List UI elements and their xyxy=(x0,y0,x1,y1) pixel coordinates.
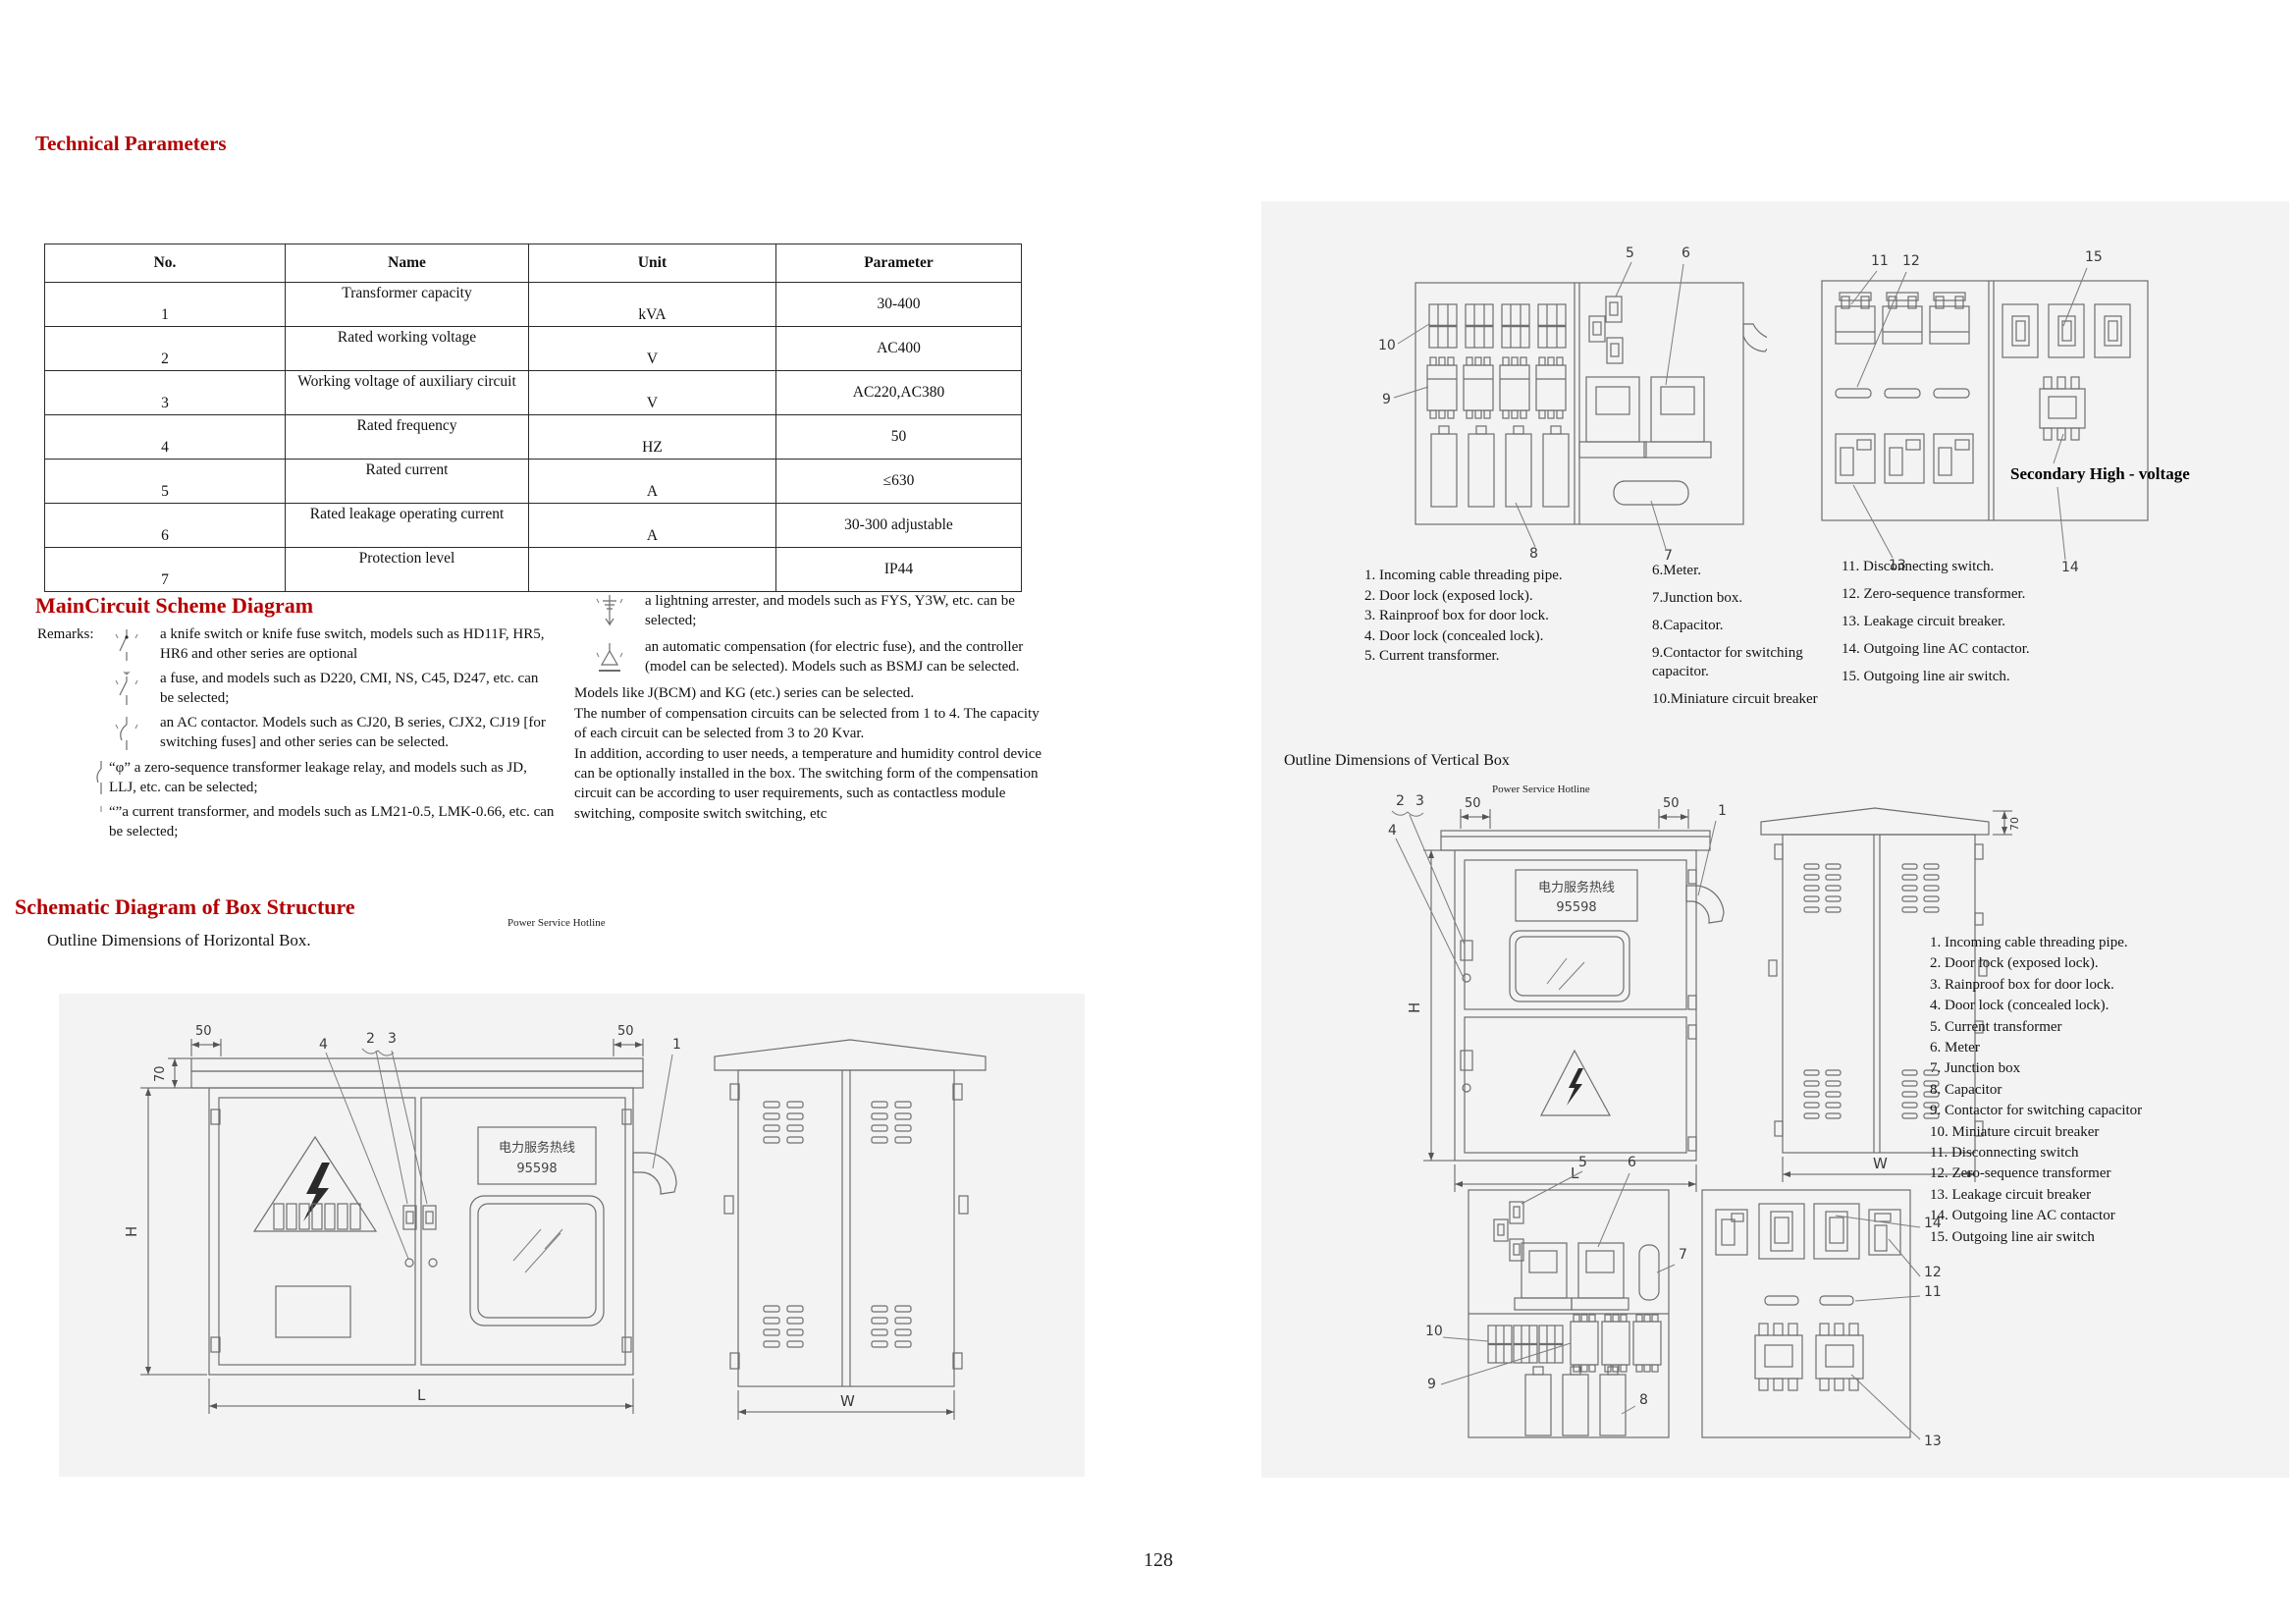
cell-unit: A xyxy=(529,504,776,548)
zero-sequence-slots xyxy=(1765,1296,1853,1305)
leakage-circuit-breakers xyxy=(1836,434,1973,483)
table-row: 4 Rated frequency HZ 50 xyxy=(45,415,1022,460)
callout-12-label: 12 xyxy=(1924,1265,1942,1280)
col-header-unit: Unit xyxy=(529,244,776,283)
cell-no: 4 xyxy=(45,415,286,460)
dim-70: 70 xyxy=(153,1065,168,1082)
col-header-parameter: Parameter xyxy=(776,244,1022,283)
legend-item: 14. Outgoing line AC contactor. xyxy=(1842,640,2165,659)
vertical-internal-high-voltage-drawing: 14 12 11 13 xyxy=(1667,1149,1963,1475)
legend-item: 3. Rainproof box for door lock. xyxy=(1364,606,1651,626)
main-circuit-remarks-left: a knife switch or knife fuse switch, mod… xyxy=(93,624,555,846)
legend-item: 8.Capacitor. xyxy=(1652,617,1837,635)
dim-H: H xyxy=(1406,1002,1423,1013)
cell-no: 5 xyxy=(45,460,286,504)
outgoing-ac-contactor xyxy=(2040,377,2085,440)
legend-item: 5. Current transformer xyxy=(1930,1017,2269,1038)
table-row: 5 Rated current A ≤630 xyxy=(45,460,1022,504)
cell-no: 6 xyxy=(45,504,286,548)
legend-item: 7. Junction box xyxy=(1930,1058,2269,1079)
legend-item: 15. Outgoing line air switch. xyxy=(1842,668,2165,686)
knife-switch-icon xyxy=(93,624,160,664)
capacitors xyxy=(1431,426,1569,507)
main-circuit-remarks-right: a lightning arrester, and models such as… xyxy=(574,591,1047,825)
cell-parameter: AC220,AC380 xyxy=(776,371,1022,415)
callout-5-label: 5 xyxy=(1626,245,1634,261)
cell-parameter: ≤630 xyxy=(776,460,1022,504)
junction-box-slot xyxy=(1639,1245,1659,1300)
callout-3-label: 3 xyxy=(1415,793,1424,809)
remark-text: a knife switch or knife fuse switch, mod… xyxy=(160,624,555,664)
legend-item: 10.Miniature circuit breaker xyxy=(1652,690,1837,709)
table-row: 1 Transformer capacity kVA 30-400 xyxy=(45,283,1022,327)
document-page: Technical Parameters No. Name Unit Param… xyxy=(0,0,2296,1624)
horizontal-box-side-view-drawing: W xyxy=(707,1013,993,1434)
secondary-high-voltage-label: Secondary High - voltage xyxy=(2010,464,2190,483)
technical-parameters-table: No. Name Unit Parameter 1 Transformer ca… xyxy=(44,244,1022,592)
hotline-plate-line2: 95598 xyxy=(516,1162,557,1176)
viewing-window xyxy=(470,1196,604,1326)
callout-6-label: 6 xyxy=(1628,1155,1636,1170)
cell-name: Protection level xyxy=(286,548,529,592)
callouts: 5 6 7 10 9 8 xyxy=(1425,1155,1687,1414)
auto-compensation-icon xyxy=(574,637,645,678)
hotline-plate-line2: 95598 xyxy=(1556,900,1596,915)
meters xyxy=(1515,1243,1629,1310)
legend-item: 2. Door lock (exposed lock). xyxy=(1364,586,1651,607)
main-circuit-title: MainCircuit Scheme Diagram xyxy=(35,593,313,619)
legend-item: 11. Disconnecting switch xyxy=(1930,1143,2269,1164)
remark-text: a fuse, and models such as D220, CMI, NS… xyxy=(160,669,555,708)
vertical-box-front-view-drawing: 50 50 H L 电力服务热线 95598 xyxy=(1362,776,1789,1202)
box-structure-title: Schematic Diagram of Box Structure xyxy=(15,894,355,920)
callout-2-label: 2 xyxy=(1396,793,1405,809)
legend-item: 2. Door lock (exposed lock). xyxy=(1930,953,2269,974)
remark-paragraph: The number of compensation circuits can … xyxy=(574,704,1047,743)
legend-item: 9.Contactor for switching capacitor. xyxy=(1652,644,1837,681)
legend-item: 9. Contactor for switching capacitor xyxy=(1930,1101,2269,1121)
switching-contactors xyxy=(1427,357,1566,418)
legend-item: 4. Door lock (concealed lock). xyxy=(1364,626,1651,647)
cell-unit: V xyxy=(529,371,776,415)
callout-13-label: 13 xyxy=(1924,1434,1942,1449)
cell-name: Rated leakage operating current xyxy=(286,504,529,548)
dim-H: H xyxy=(123,1226,140,1237)
nameplate-blank xyxy=(276,1286,350,1337)
legend-item: 13. Leakage circuit breaker. xyxy=(1842,613,2165,631)
table-row: 3 Working voltage of auxiliary circuit V… xyxy=(45,371,1022,415)
legend-item: 4. Door lock (concealed lock). xyxy=(1930,996,2269,1016)
legend-item: 15. Outgoing line air switch xyxy=(1930,1227,2269,1248)
cell-name: Rated frequency xyxy=(286,415,529,460)
disconnecting-switches xyxy=(1836,293,1969,344)
power-service-hotline-note: Power Service Hotline xyxy=(507,917,606,929)
cell-unit: A xyxy=(529,460,776,504)
door-locks xyxy=(1461,941,1472,1092)
outgoing-air-switches xyxy=(2002,304,2130,357)
legend-item: 13. Leakage circuit breaker xyxy=(1930,1185,2269,1206)
callout-4-label: 4 xyxy=(1388,823,1397,839)
legend-item: 6. Meter xyxy=(1930,1038,2269,1058)
hotline-plate: 电力服务热线 95598 xyxy=(478,1127,596,1184)
cell-no: 3 xyxy=(45,371,286,415)
louver-vents xyxy=(1804,864,1939,1118)
door-locks xyxy=(403,1206,437,1267)
legend-item: 12. Zero-sequence transformer xyxy=(1930,1164,2269,1184)
callout-10-label: 10 xyxy=(1378,338,1396,353)
remark-item: “”a current transformer, and models such… xyxy=(93,802,555,841)
callout-8-label: 8 xyxy=(1529,546,1538,562)
dim-50-left: 50 xyxy=(195,1024,212,1039)
viewing-window xyxy=(1510,931,1629,1001)
zero-sequence-slots xyxy=(1836,389,1969,398)
horizontal-box-caption: Outline Dimensions of Horizontal Box. xyxy=(47,931,311,950)
legend-item: 14. Outgoing line AC contactor xyxy=(1930,1206,2269,1226)
ac-contactor-icon xyxy=(93,713,160,752)
cell-no: 1 xyxy=(45,283,286,327)
cell-parameter: 30-300 adjustable xyxy=(776,504,1022,548)
callout-1-label: 1 xyxy=(672,1037,681,1053)
col-header-name: Name xyxy=(286,244,529,283)
callout-11-label: 11 xyxy=(1924,1284,1942,1300)
dim-50-right: 50 xyxy=(617,1024,634,1039)
callout-6-label: 6 xyxy=(1682,245,1690,261)
table-header-row: No. Name Unit Parameter xyxy=(45,244,1022,283)
legend-top-col3: 11. Disconnecting switch. 12. Zero-seque… xyxy=(1842,558,2165,695)
callouts: 14 12 11 13 xyxy=(1836,1216,1942,1449)
cabinet-outline xyxy=(1822,281,2148,520)
legend-item: 6.Meter. xyxy=(1652,562,1837,580)
miniature-circuit-breakers xyxy=(1429,304,1566,348)
legend-item: 1. Incoming cable threading pipe. xyxy=(1364,566,1651,586)
meters xyxy=(1579,377,1711,458)
remark-item: a fuse, and models such as D220, CMI, NS… xyxy=(93,669,555,708)
zero-sequence-relay-icon xyxy=(93,758,109,797)
page-number: 128 xyxy=(1050,1549,1266,1572)
horizontal-box-front-view-drawing: 50 50 70 H L xyxy=(83,994,712,1431)
legend-item: 11. Disconnecting switch. xyxy=(1842,558,2165,576)
current-transformers xyxy=(1589,297,1623,363)
remark-text: an AC contactor. Models such as CJ20, B … xyxy=(160,713,555,752)
dim-50-right: 50 xyxy=(1663,796,1680,811)
hotline-plate: 电力服务热线 95598 xyxy=(1516,870,1637,921)
callout-5-label: 5 xyxy=(1578,1155,1587,1170)
remark-paragraph: In addition, according to user needs, a … xyxy=(574,744,1047,823)
callout-9-label: 9 xyxy=(1427,1377,1436,1392)
dimensions: W xyxy=(738,1390,954,1420)
outgoing-breaker-row xyxy=(1716,1204,1900,1259)
table-row: 2 Rated working voltage V AC400 xyxy=(45,327,1022,371)
switching-contactors xyxy=(1571,1315,1661,1372)
table-row: 6 Rated leakage operating current A 30-3… xyxy=(45,504,1022,548)
cell-parameter: 30-400 xyxy=(776,283,1022,327)
callout-10-label: 10 xyxy=(1425,1324,1443,1339)
callout-4-label: 4 xyxy=(319,1037,328,1053)
lightning-arrester-icon xyxy=(574,591,645,632)
remark-text: “”a current transformer, and models such… xyxy=(109,802,555,841)
current-transformer-icon xyxy=(93,802,109,841)
hotline-plate-line1: 电力服务热线 xyxy=(499,1140,575,1156)
roof xyxy=(1441,831,1710,850)
remark-item: an automatic compensation (for electric … xyxy=(574,637,1047,678)
zero-sequence-transformers xyxy=(1755,1324,1863,1390)
remark-text: a lightning arrester, and models such as… xyxy=(645,591,1047,632)
callout-11-label: 11 xyxy=(1871,253,1889,269)
cell-name: Working voltage of auxiliary circuit xyxy=(286,371,529,415)
cell-parameter: IP44 xyxy=(776,548,1022,592)
cabinet-body xyxy=(1455,850,1696,1161)
roof-rail xyxy=(191,1058,643,1088)
fuse-icon xyxy=(93,669,160,708)
threading-pipe xyxy=(1686,886,1724,923)
internal-layout-low-voltage-drawing: 10 9 5 6 8 7 xyxy=(1372,240,1767,568)
legend-item: 8. Capacitor xyxy=(1930,1080,2269,1101)
remark-text: an automatic compensation (for electric … xyxy=(645,637,1047,678)
cell-name: Rated working voltage xyxy=(286,327,529,371)
cell-no: 2 xyxy=(45,327,286,371)
current-transformers xyxy=(1494,1202,1523,1261)
callout-1-label: 1 xyxy=(1718,803,1727,819)
cell-unit: kVA xyxy=(529,283,776,327)
legend-top-col2: 6.Meter. 7.Junction box. 8.Capacitor. 9.… xyxy=(1652,562,1837,718)
dim-50-left: 50 xyxy=(1465,796,1481,811)
remark-paragraph: Models like J(BCM) and KG (etc.) series … xyxy=(574,683,1047,703)
legend-item: 5. Current transformer. xyxy=(1364,646,1651,667)
legend-item: 7.Junction box. xyxy=(1652,589,1837,608)
callouts: 10 9 5 6 8 7 xyxy=(1378,245,1690,564)
callout-12-label: 12 xyxy=(1902,253,1920,269)
remarks-label: Remarks: xyxy=(37,626,94,643)
callout-9-label: 9 xyxy=(1382,392,1391,407)
cell-name: Transformer capacity xyxy=(286,283,529,327)
legend-item: 3. Rainproof box for door lock. xyxy=(1930,975,2269,996)
cabinet-body xyxy=(715,1040,986,1386)
legend-top-col1: 1. Incoming cable threading pipe. 2. Doo… xyxy=(1364,566,1651,667)
dim-L: L xyxy=(417,1386,426,1404)
warning-triangle-icon xyxy=(1541,1051,1610,1115)
cell-name: Rated current xyxy=(286,460,529,504)
remark-text: “φ” a zero-sequence transformer leakage … xyxy=(109,758,555,797)
callout-8-label: 8 xyxy=(1639,1392,1648,1408)
louver-vents xyxy=(764,1102,911,1347)
cell-parameter: 50 xyxy=(776,415,1022,460)
technical-parameters-title: Technical Parameters xyxy=(35,132,227,156)
dim-70: 70 xyxy=(2008,817,2020,831)
legend-item: 12. Zero-sequence transformer. xyxy=(1842,585,2165,604)
vertical-box-caption: Outline Dimensions of Vertical Box xyxy=(1284,752,1510,770)
capacitors xyxy=(1525,1367,1626,1435)
cell-parameter: AC400 xyxy=(776,327,1022,371)
roof xyxy=(1761,808,1989,835)
warning-triangle-icon xyxy=(254,1137,376,1231)
dimensions: 50 50 H L xyxy=(1406,796,1696,1192)
table-row: 7 Protection level IP44 xyxy=(45,548,1022,592)
cell-unit: HZ xyxy=(529,415,776,460)
remark-item: an AC contactor. Models such as CJ20, B … xyxy=(93,713,555,752)
callout-2-label: 2 xyxy=(366,1031,375,1047)
legend-right-list: 1. Incoming cable threading pipe. 2. Doo… xyxy=(1930,933,2269,1248)
callout-3-label: 3 xyxy=(388,1031,397,1047)
remark-item: a knife switch or knife fuse switch, mod… xyxy=(93,624,555,664)
cell-unit: V xyxy=(529,327,776,371)
legend-item: 10. Miniature circuit breaker xyxy=(1930,1122,2269,1143)
cell-unit xyxy=(529,548,776,592)
legend-item: 1. Incoming cable threading pipe. xyxy=(1930,933,2269,953)
hotline-plate-line1: 电力服务热线 xyxy=(1538,880,1615,895)
col-header-no: No. xyxy=(45,244,286,283)
callout-15-label: 15 xyxy=(2085,249,2103,265)
remark-item: “φ” a zero-sequence transformer leakage … xyxy=(93,758,555,797)
dim-W: W xyxy=(840,1392,855,1410)
cell-no: 7 xyxy=(45,548,286,592)
remark-item: a lightning arrester, and models such as… xyxy=(574,591,1047,632)
internal-layout-high-voltage-drawing: Secondary High - voltage 11 12 15 13 14 xyxy=(1806,240,2191,575)
